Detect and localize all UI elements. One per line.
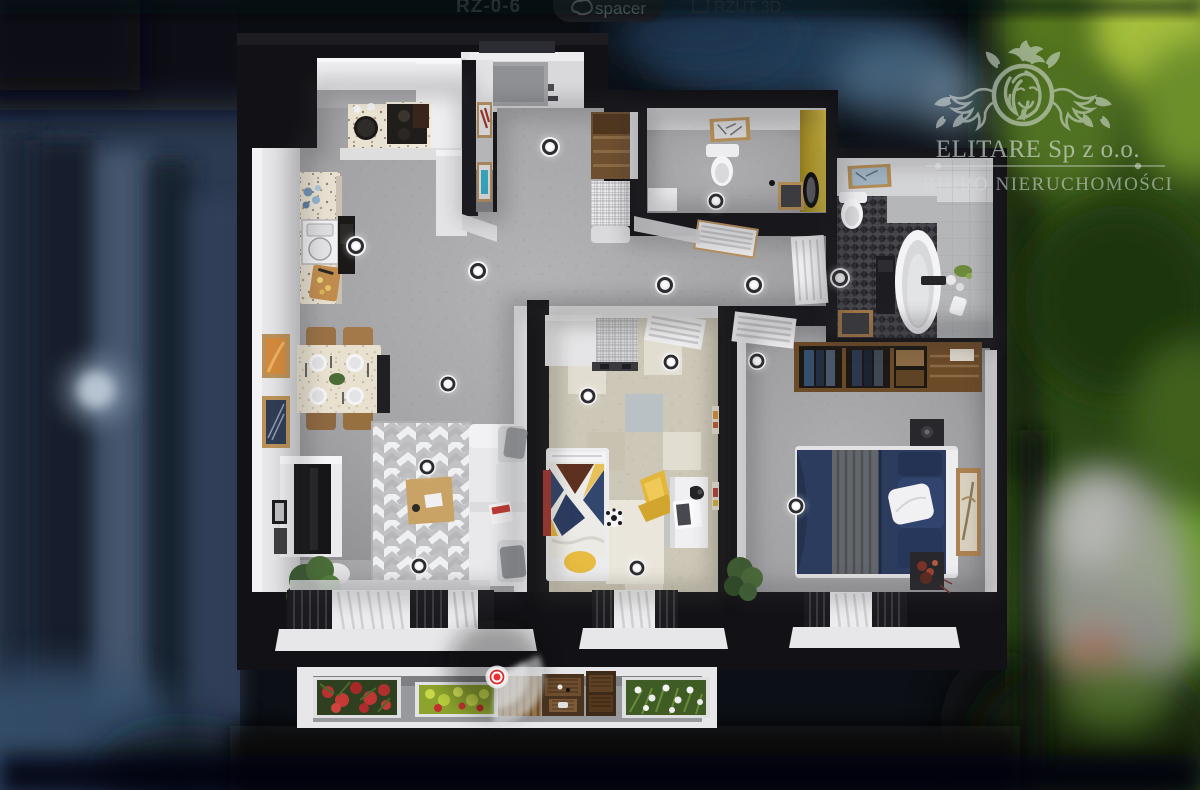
svg-text:BIURO NIERUCHOMOŚCI: BIURO NIERUCHOMOŚCI: [923, 173, 1174, 195]
svg-text:ELITARE Sp z o.o.: ELITARE Sp z o.o.: [936, 136, 1140, 163]
